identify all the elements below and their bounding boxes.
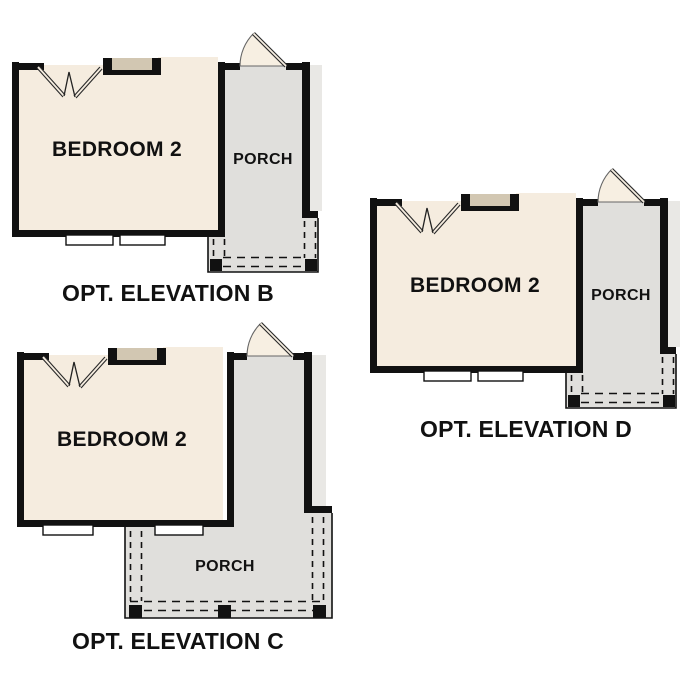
plan-elevation-b: BEDROOM 2 PORCH OPT. ELEVATION B xyxy=(8,25,328,310)
porch-post xyxy=(568,395,580,407)
porch-label: PORCH xyxy=(581,287,661,305)
floor-plan-sheet: BEDROOM 2 PORCH OPT. ELEVATION B xyxy=(0,0,687,687)
window-symbol xyxy=(66,235,113,245)
bedroom-wall-left xyxy=(12,62,19,237)
roof-eave-strip xyxy=(668,201,680,347)
porch-wall-right xyxy=(302,62,310,218)
plan-elevation-d: BEDROOM 2 PORCH OPT. ELEVATION D xyxy=(366,161,686,446)
porch-post xyxy=(305,259,317,271)
porch-wall-left xyxy=(227,352,234,527)
window-symbol xyxy=(43,525,93,535)
plan-caption: OPT. ELEVATION B xyxy=(8,281,328,306)
porch-floor-corner xyxy=(304,513,332,527)
porch-wall-top-left xyxy=(227,353,247,360)
door-swing-icon xyxy=(247,324,293,357)
door-swing-icon xyxy=(598,170,644,203)
bedroom-wall-left xyxy=(17,352,24,527)
porch-post xyxy=(313,605,326,618)
room-label: BEDROOM 2 xyxy=(395,274,555,297)
porch-wall-left xyxy=(218,62,225,237)
porch-wall-nub xyxy=(660,347,676,354)
roof-eave-strip xyxy=(310,65,322,211)
plan-elevation-c: BEDROOM 2 PORCH OPT. ELEVATION C xyxy=(13,315,343,665)
room-label: BEDROOM 2 xyxy=(42,428,202,451)
bedroom-floor-ext xyxy=(158,57,218,66)
porch-wall-nub xyxy=(302,211,318,218)
window-symbol xyxy=(424,371,471,381)
porch-label: PORCH xyxy=(223,151,303,169)
window-niche xyxy=(112,58,152,70)
porch-post xyxy=(663,395,675,407)
porch-wall-right xyxy=(304,352,312,513)
porch-post xyxy=(210,259,222,271)
porch-wall-top-left xyxy=(576,199,598,206)
porch-post xyxy=(129,605,142,618)
porch-wall-right xyxy=(660,198,668,354)
bedroom-wall-bottom xyxy=(12,230,225,237)
bedroom-wall-left xyxy=(370,198,377,373)
plan-caption: OPT. ELEVATION D xyxy=(366,417,686,442)
porch-wall-nub xyxy=(304,506,332,513)
bedroom-floor-ext xyxy=(516,193,576,202)
bedroom-floor-ext xyxy=(163,347,223,356)
porch-wall-top-left xyxy=(218,63,240,70)
window-symbol xyxy=(155,525,203,535)
plan-caption: OPT. ELEVATION C xyxy=(13,629,343,654)
room-label: BEDROOM 2 xyxy=(37,138,197,161)
window-symbol xyxy=(478,371,523,381)
roof-eave-strip xyxy=(312,355,326,506)
porch-post xyxy=(218,605,231,618)
window-symbol xyxy=(120,235,165,245)
plan-c-drawing xyxy=(13,315,343,655)
porch-wall-left xyxy=(576,198,583,373)
porch-floor xyxy=(234,360,304,527)
window-niche xyxy=(470,194,510,206)
bedroom-wall-bottom xyxy=(370,366,583,373)
porch-label: PORCH xyxy=(185,558,265,576)
window-niche xyxy=(117,348,157,360)
door-swing-icon xyxy=(240,34,286,67)
